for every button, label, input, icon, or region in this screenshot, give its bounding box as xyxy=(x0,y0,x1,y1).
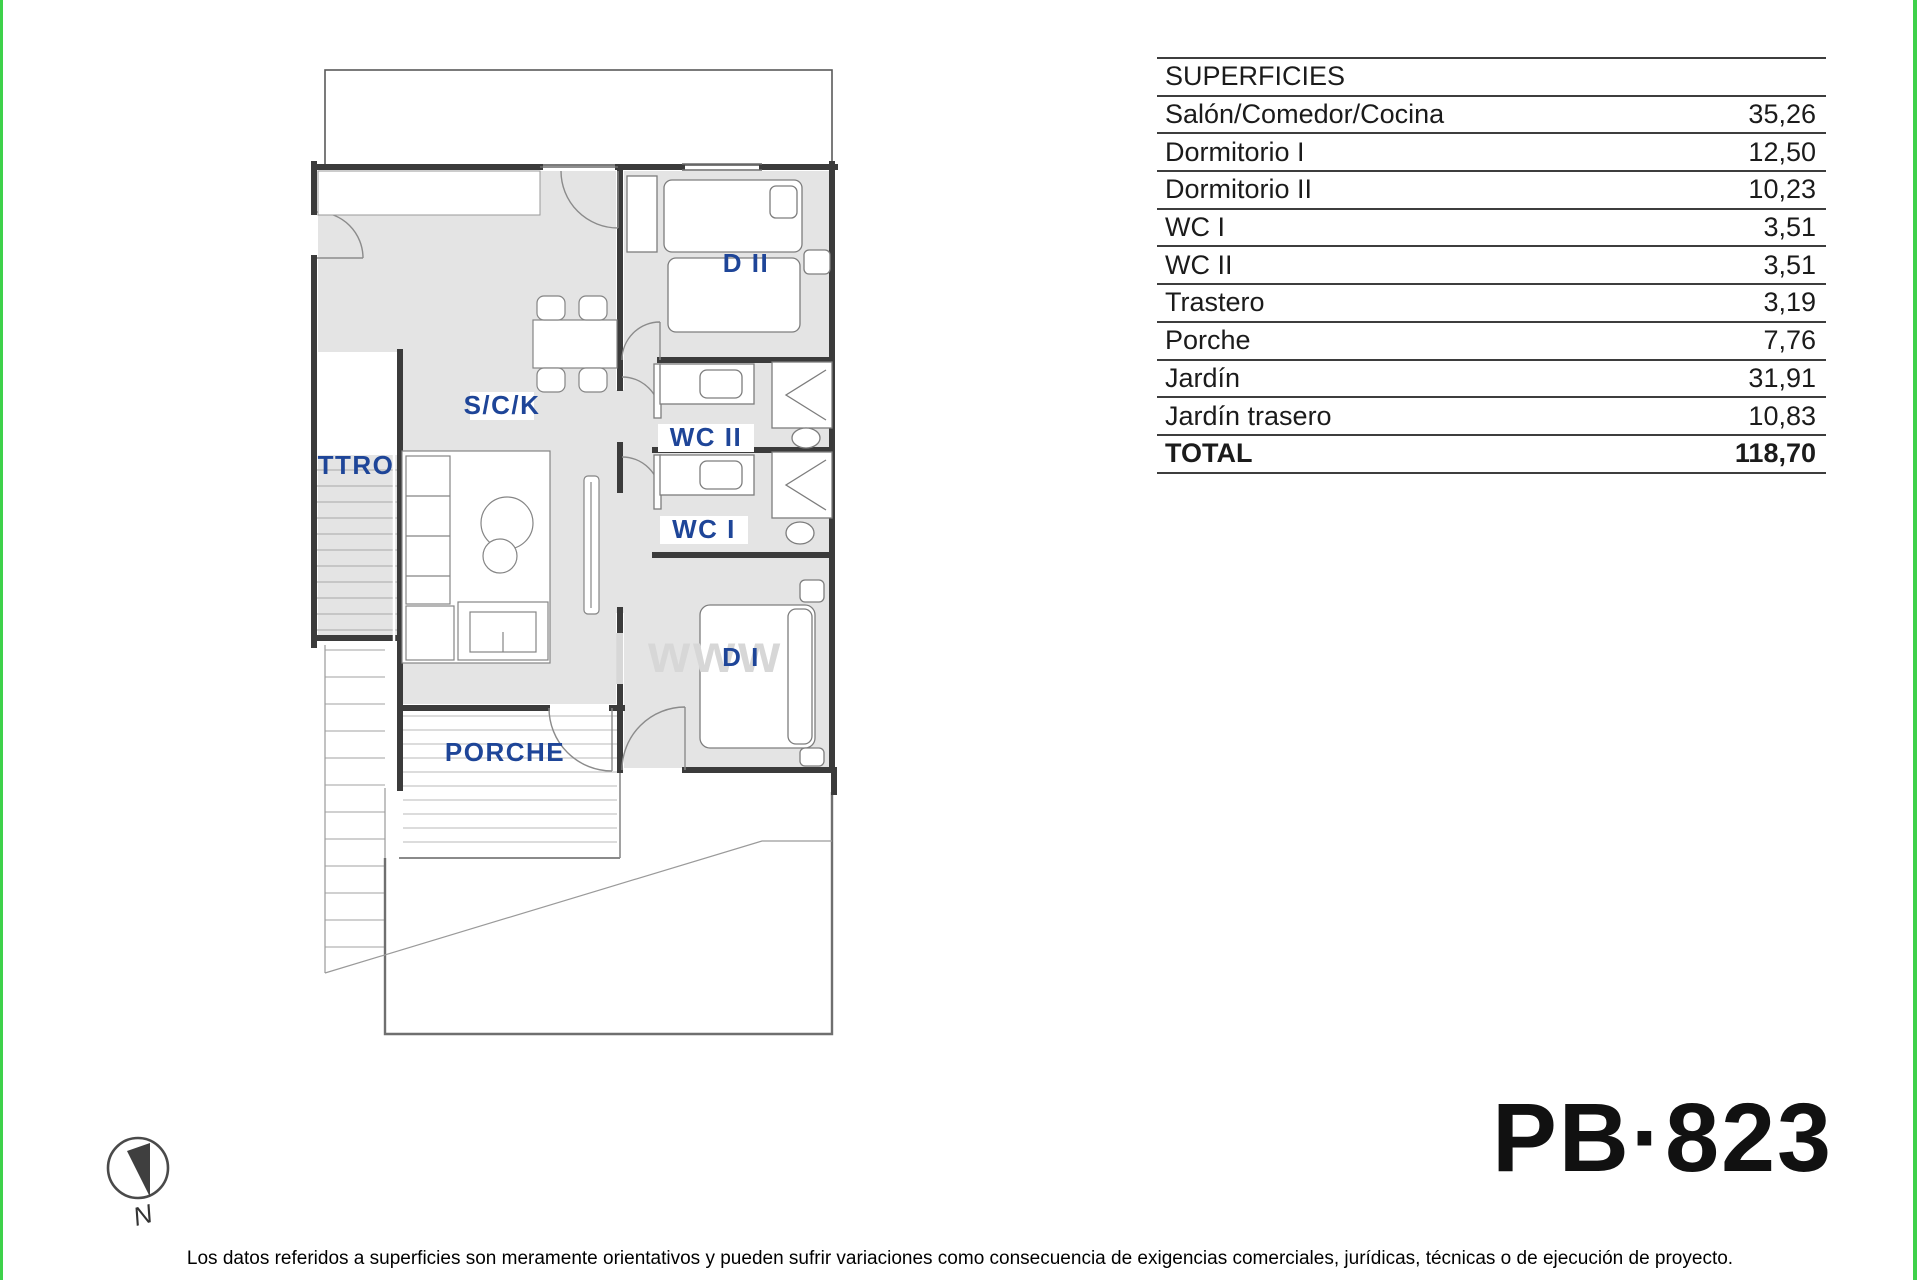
table-row: Dormitorio II 10,23 xyxy=(1157,170,1826,208)
room-label-ttro: TTRO xyxy=(318,450,395,480)
plan-code: PB·823 xyxy=(1492,1082,1833,1194)
table-total-row: TOTAL 118,70 xyxy=(1157,434,1826,472)
surfaces-table: SUPERFICIES Salón/Comedor/Cocina 35,26 D… xyxy=(1157,57,1826,474)
exterior-steps xyxy=(325,650,385,947)
porch-deck-lines xyxy=(403,716,617,842)
table-row: WC II 3,51 xyxy=(1157,245,1826,283)
row-label: Trastero xyxy=(1165,289,1265,316)
row-label: Porche xyxy=(1165,327,1251,354)
table-row: Jardín trasero 10,83 xyxy=(1157,396,1826,434)
room-label-sck: S/C/K xyxy=(464,390,541,420)
row-label: WC I xyxy=(1165,214,1225,241)
table-row: WC I 3,51 xyxy=(1157,208,1826,246)
row-label: Dormitorio I xyxy=(1165,139,1305,166)
total-value: 118,70 xyxy=(1735,440,1816,467)
room-label-d1: D I xyxy=(722,642,760,672)
row-label: Salón/Comedor/Cocina xyxy=(1165,101,1444,128)
row-value: 3,19 xyxy=(1763,289,1816,316)
row-value: 12,50 xyxy=(1748,139,1816,166)
row-value: 3,51 xyxy=(1763,214,1816,241)
compass-icon: N xyxy=(108,1138,168,1232)
room-label-wc1: WC I xyxy=(672,514,736,544)
table-row: Porche 7,76 xyxy=(1157,321,1826,359)
row-value: 7,76 xyxy=(1763,327,1816,354)
row-label: WC II xyxy=(1165,252,1233,279)
compass-north-label: N xyxy=(130,1198,156,1232)
total-label: TOTAL xyxy=(1165,440,1253,467)
row-value: 10,23 xyxy=(1748,176,1816,203)
row-label: Jardín xyxy=(1165,365,1240,392)
table-row: Jardín 31,91 xyxy=(1157,359,1826,397)
row-value: 31,91 xyxy=(1748,365,1816,392)
row-value: 10,83 xyxy=(1748,403,1816,430)
room-label-wc2: WC II xyxy=(670,422,743,452)
table-header-row: SUPERFICIES xyxy=(1157,57,1826,95)
room-label-porche: PORCHE xyxy=(445,737,565,767)
disclaimer-text: Los datos referidos a superficies son me… xyxy=(0,1248,1920,1270)
room-label-d2: D II xyxy=(723,248,769,278)
table-header: SUPERFICIES xyxy=(1165,63,1345,90)
table-row: Trastero 3,19 xyxy=(1157,283,1826,321)
row-value: 3,51 xyxy=(1763,252,1816,279)
kitchen-counter xyxy=(318,171,540,215)
table-row: Dormitorio I 12,50 xyxy=(1157,132,1826,170)
back-garden-outline xyxy=(325,70,832,165)
floorplan-sheet: | www S/C/K TTRO D II WC II WC I D I POR… xyxy=(0,0,1920,1280)
row-label: Dormitorio II xyxy=(1165,176,1312,203)
row-value: 35,26 xyxy=(1748,101,1816,128)
table-row: Salón/Comedor/Cocina 35,26 xyxy=(1157,95,1826,133)
row-label: Jardín trasero xyxy=(1165,403,1332,430)
